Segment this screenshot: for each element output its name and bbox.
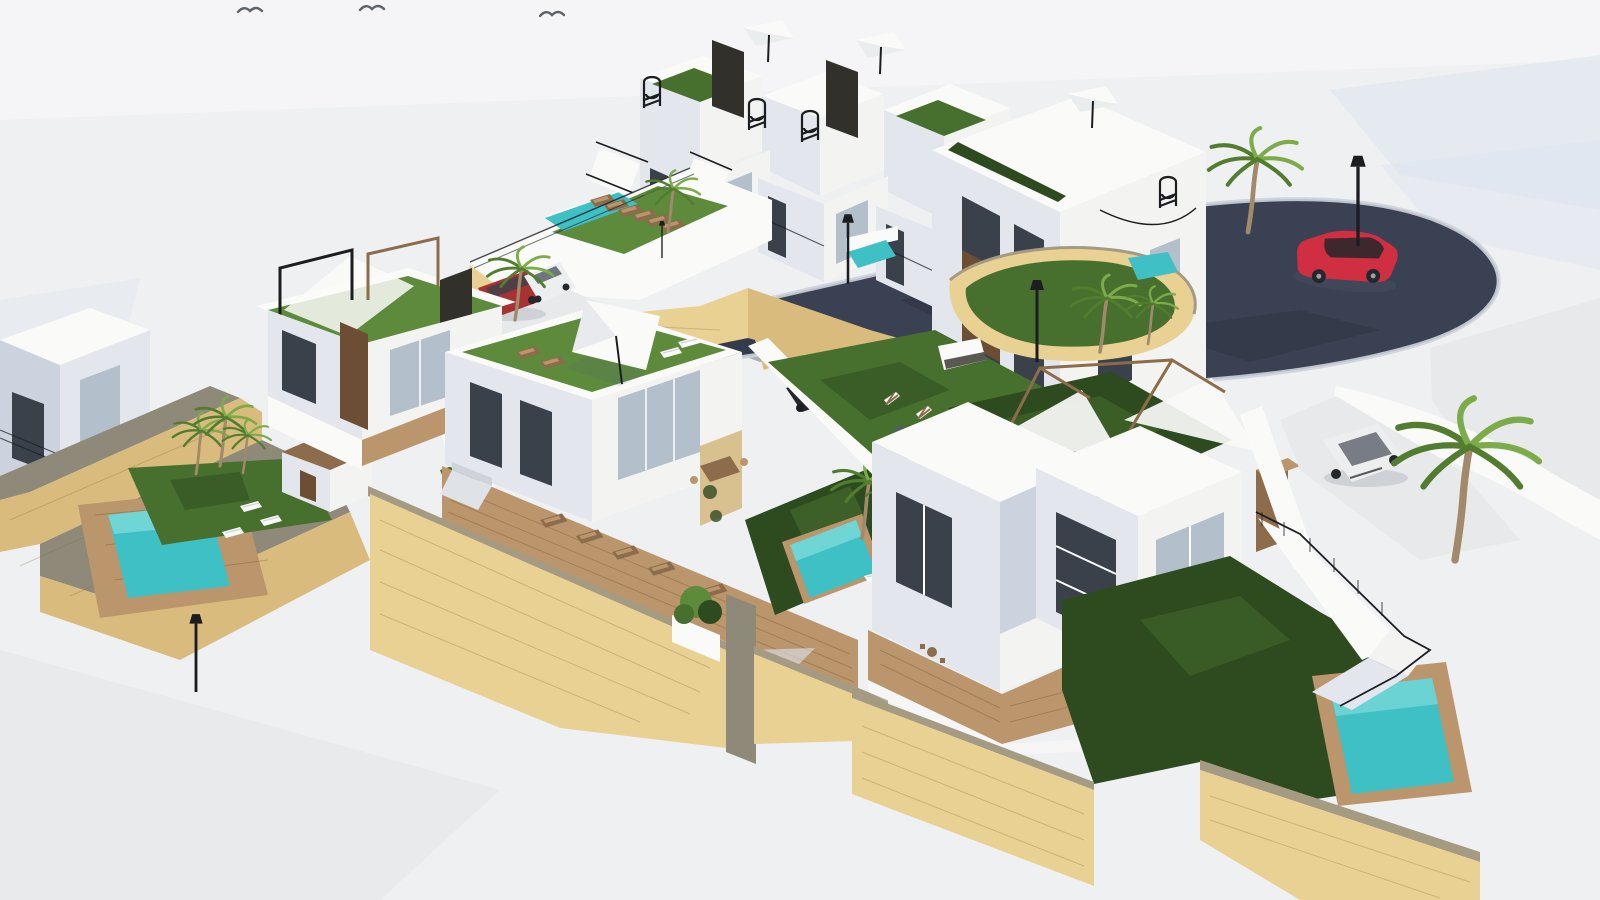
stone-pillar bbox=[726, 594, 756, 764]
bush bbox=[674, 604, 694, 624]
architectural-render: Aerial 3D rendering of a hillside villa … bbox=[0, 0, 1600, 900]
bistro-table bbox=[927, 647, 937, 657]
render-canvas: Aerial 3D rendering of a hillside villa … bbox=[0, 0, 1600, 900]
wheel bbox=[535, 296, 542, 303]
wheel bbox=[1331, 469, 1341, 479]
bistro-chair bbox=[920, 644, 925, 649]
window bbox=[470, 382, 502, 468]
dark-roof-panel bbox=[826, 60, 858, 138]
chair bbox=[690, 476, 698, 484]
bush bbox=[698, 600, 722, 624]
dark-roof-panel bbox=[712, 40, 744, 118]
wheel bbox=[796, 404, 804, 412]
vine-plant bbox=[710, 510, 722, 522]
vine-plant bbox=[703, 485, 717, 499]
chair bbox=[740, 458, 748, 466]
window bbox=[12, 392, 44, 470]
recess-wall bbox=[1000, 486, 1036, 634]
wheel bbox=[563, 284, 570, 291]
dark-accent-panel bbox=[340, 322, 368, 430]
window bbox=[520, 400, 552, 486]
bistro-chair bbox=[940, 658, 945, 663]
